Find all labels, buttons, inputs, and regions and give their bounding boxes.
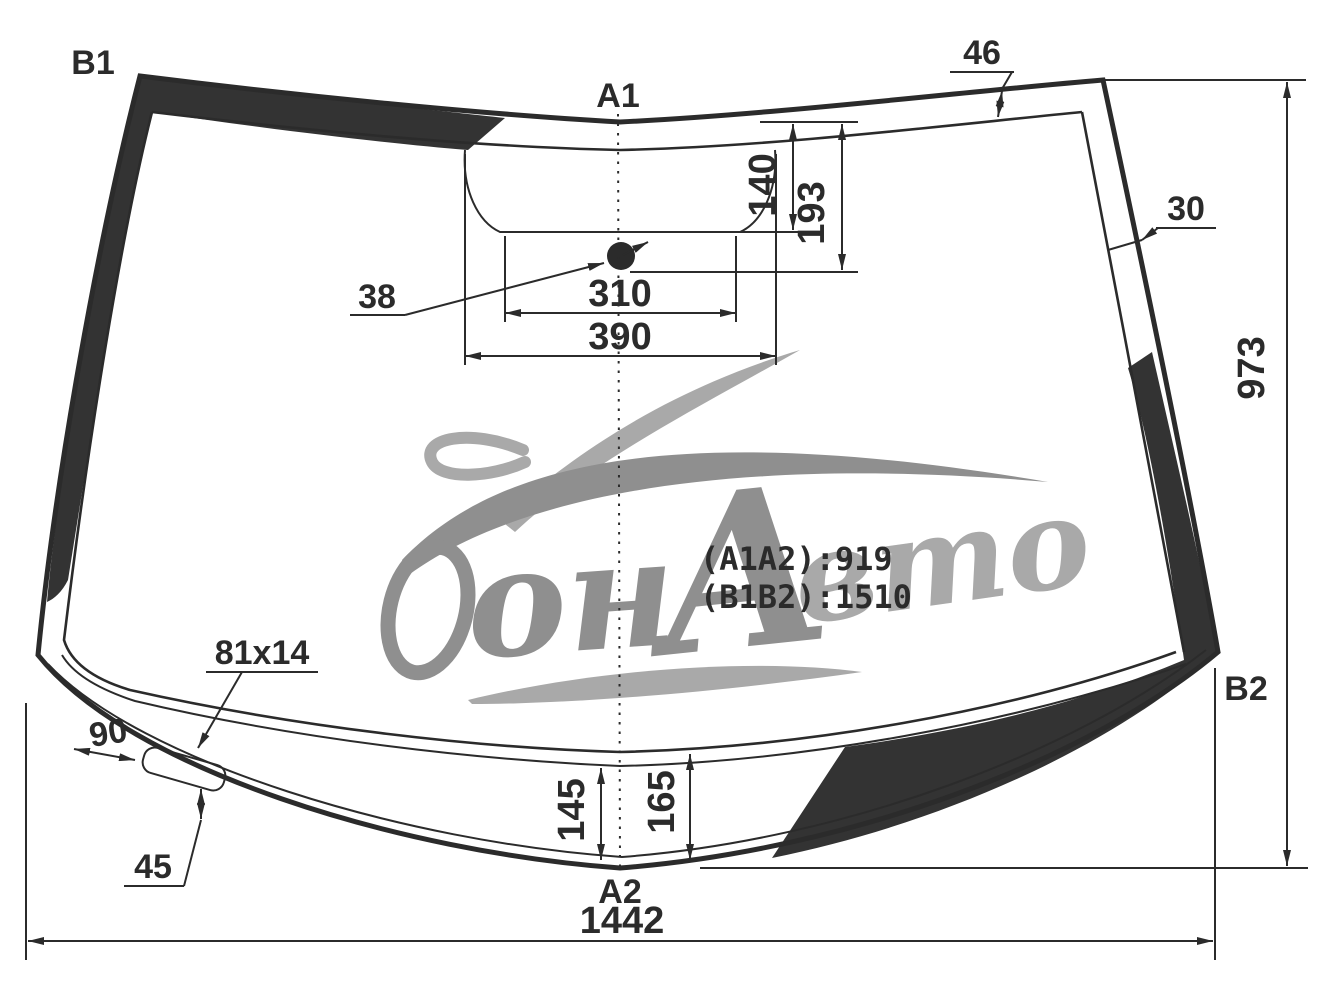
diagram-canvas: он А вто bbox=[0, 0, 1333, 1000]
dim-width: 1442 bbox=[580, 900, 665, 942]
dim-edge-offset: 90 bbox=[87, 711, 130, 754]
watermark-text-on: он bbox=[460, 504, 681, 694]
dim-band-center-left: 145 bbox=[551, 778, 593, 841]
watermark-curl bbox=[430, 438, 525, 475]
sensor-window-outline bbox=[465, 150, 776, 232]
note-b1b2: (B1B2):1510 bbox=[700, 578, 912, 616]
dim-height: 973 bbox=[1231, 336, 1273, 399]
dim-top-band: 46 bbox=[963, 34, 1001, 72]
dim-side-band: 30 bbox=[1167, 190, 1205, 228]
label-b2: B2 bbox=[1224, 670, 1267, 708]
dim-depth-lower: 193 bbox=[791, 181, 833, 244]
dim-bracket-offset: 45 bbox=[134, 848, 172, 886]
sensor-dot bbox=[607, 242, 635, 270]
dim-bracket-size: 81x14 bbox=[215, 634, 310, 672]
watermark-logo: он А вто bbox=[376, 350, 1099, 707]
note-a1a2: (A1A2):919 bbox=[700, 540, 893, 578]
dim-window-width: 390 bbox=[588, 316, 651, 358]
dim-depth-upper: 140 bbox=[742, 153, 784, 216]
dim-sensor-diameter: 38 bbox=[358, 278, 396, 316]
distance-notes: (A1A2):919 (B1B2):1510 bbox=[700, 540, 912, 616]
label-b1: B1 bbox=[71, 44, 114, 82]
frit-band-top-left bbox=[47, 76, 505, 602]
dim-sensor-width: 310 bbox=[588, 273, 651, 315]
label-a1: A1 bbox=[596, 77, 639, 115]
windshield-diagram: он А вто bbox=[0, 0, 1333, 1000]
dim-band-center-right: 165 bbox=[641, 770, 683, 833]
